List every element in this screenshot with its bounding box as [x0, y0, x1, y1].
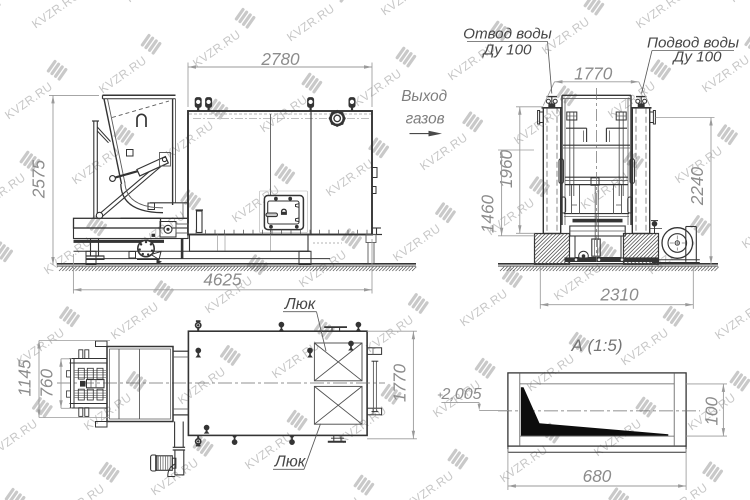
svg-text:100: 100: [702, 397, 722, 426]
svg-text:2310: 2310: [599, 284, 639, 304]
svg-text:680: 680: [583, 466, 612, 486]
svg-text:760: 760: [37, 369, 57, 398]
svg-text:2240: 2240: [687, 166, 707, 206]
svg-text:2575: 2575: [29, 159, 49, 199]
svg-text:2,005: 2,005: [440, 386, 481, 403]
svg-text:Ду 100: Ду 100: [481, 42, 532, 59]
svg-text:2780: 2780: [260, 49, 300, 69]
svg-text:Люк: Люк: [274, 454, 307, 471]
svg-text:4625: 4625: [203, 270, 242, 290]
svg-text:Выход: Выход: [401, 88, 447, 105]
svg-text:1960: 1960: [496, 149, 516, 188]
svg-text:1770: 1770: [574, 64, 613, 84]
svg-text:1145: 1145: [15, 359, 35, 396]
svg-text:А (1:5): А (1:5): [570, 336, 622, 355]
svg-text:Ду 100: Ду 100: [671, 49, 722, 66]
svg-text:Люк: Люк: [284, 296, 317, 313]
svg-text:газов: газов: [406, 111, 445, 128]
svg-text:1770: 1770: [389, 363, 409, 402]
svg-text:Отвод воды: Отвод воды: [463, 26, 552, 43]
svg-text:1460: 1460: [477, 194, 497, 233]
